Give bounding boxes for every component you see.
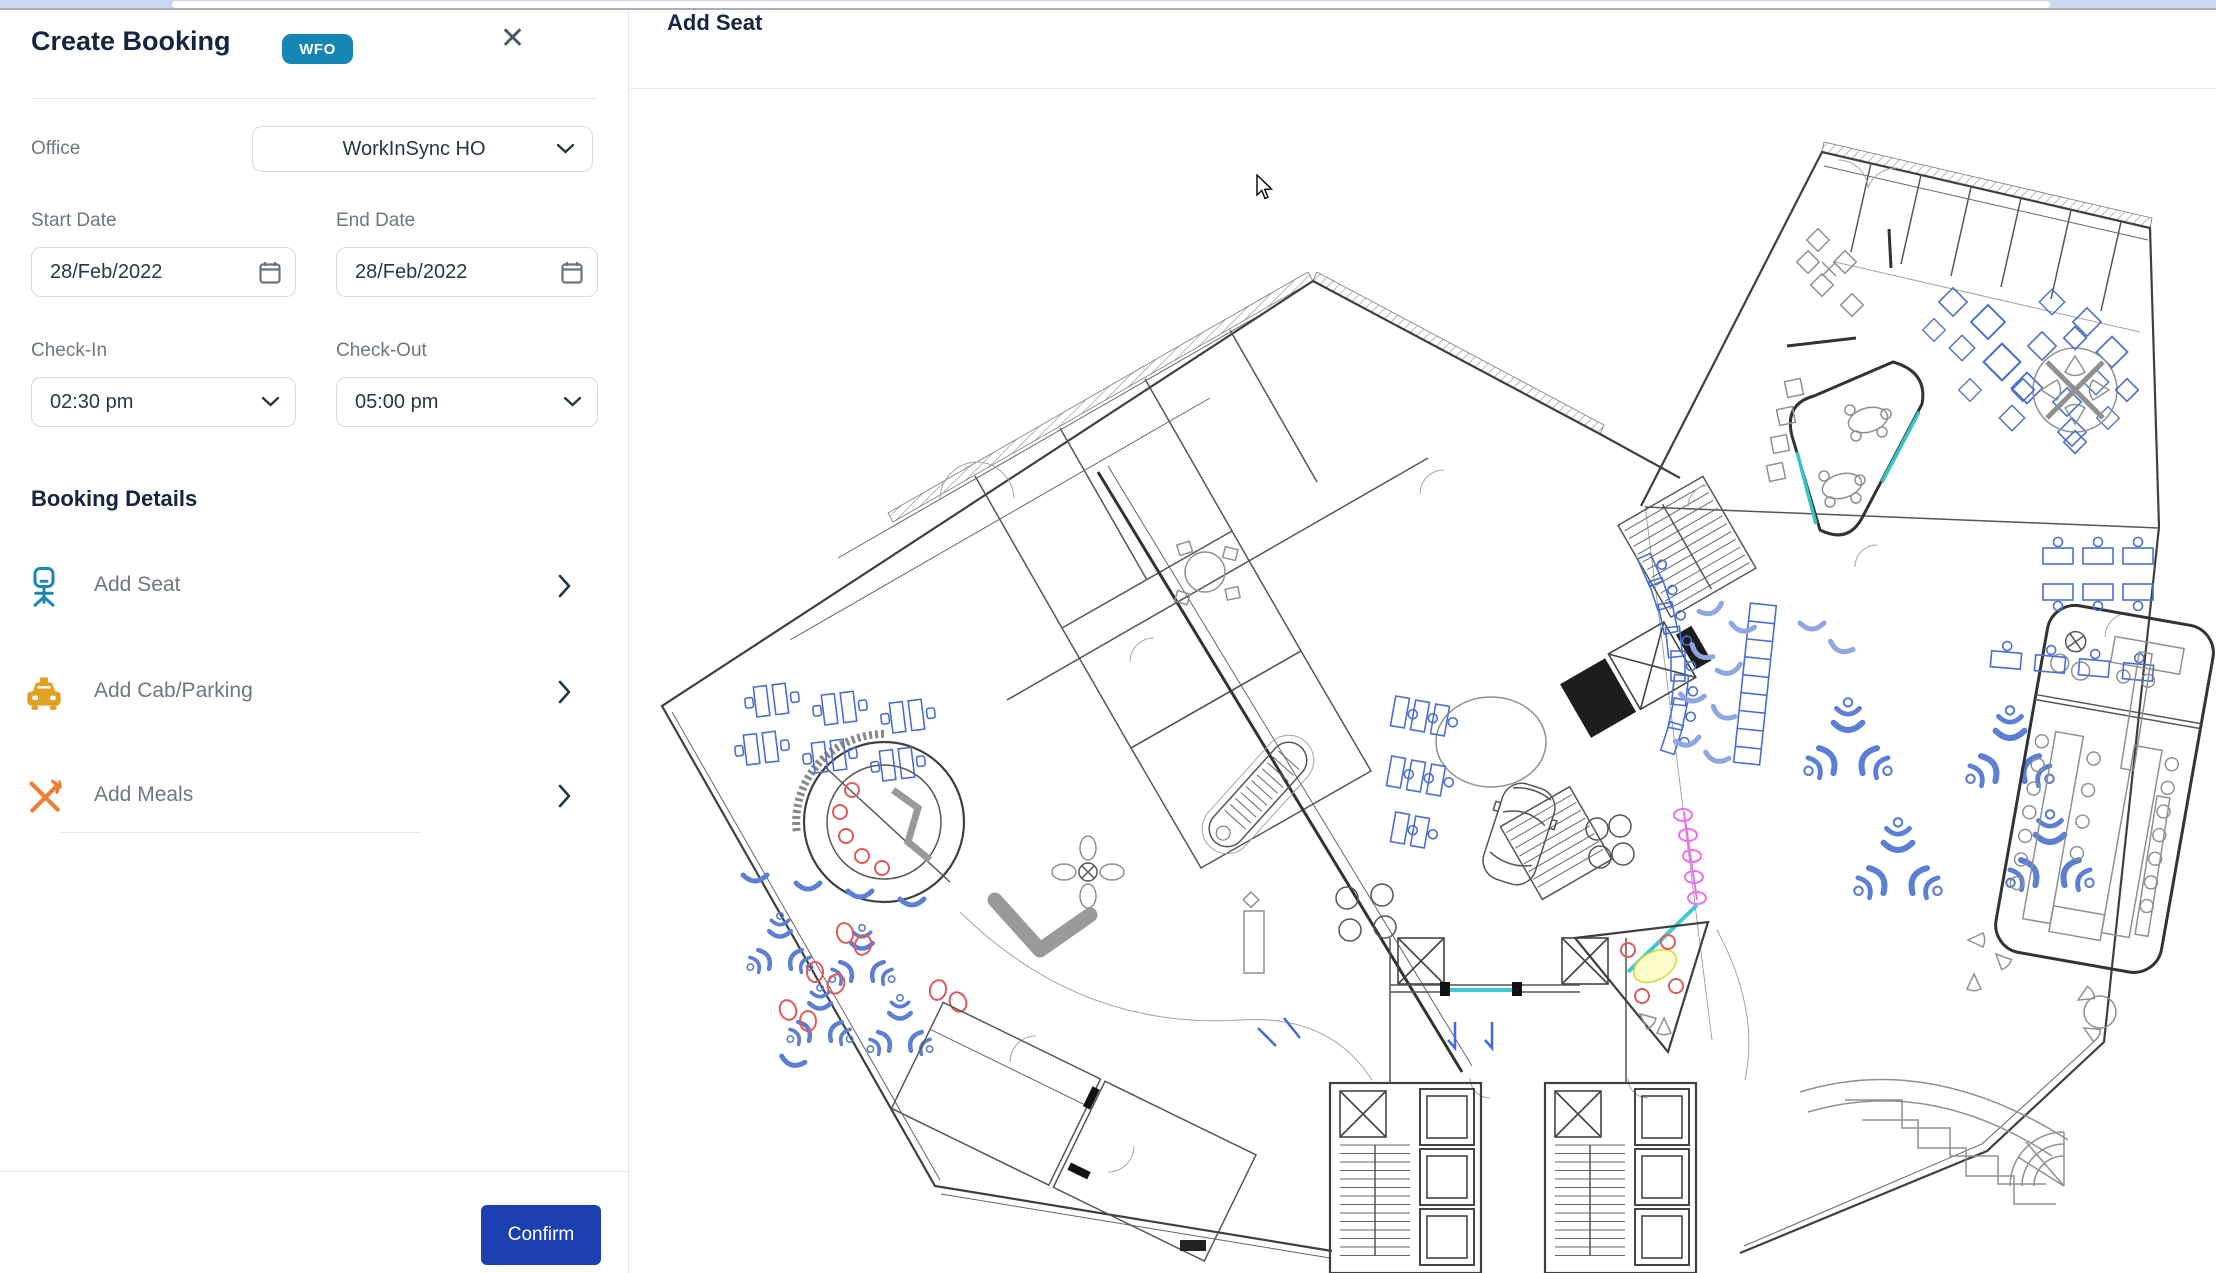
check-in-select[interactable]: 02:30 pm [31, 377, 296, 427]
office-chair-icon [26, 566, 62, 610]
chevron-down-icon [262, 397, 279, 407]
add-meals-row[interactable]: Add Meals [0, 770, 629, 824]
add-cab-parking-label: Add Cab/Parking [94, 679, 253, 703]
confirm-button[interactable]: Confirm [481, 1205, 601, 1265]
check-out-select[interactable]: 05:00 pm [336, 377, 598, 427]
office-label: Office [31, 138, 80, 160]
check-out-label: Check-Out [336, 340, 427, 362]
mouse-cursor [1256, 174, 1273, 200]
add-seat-row[interactable]: Add Seat [0, 560, 629, 614]
end-date-input[interactable]: 28/Feb/2022 [336, 247, 598, 297]
wfo-badge: WFO [282, 34, 353, 64]
horizontal-scrollbar[interactable] [0, 0, 2216, 10]
page-title: Create Booking [31, 26, 231, 57]
booking-details-heading: Booking Details [31, 486, 197, 512]
office-select[interactable]: WorkInSync HO [252, 126, 593, 172]
end-date-value: 28/Feb/2022 [355, 261, 561, 284]
calendar-icon [259, 261, 281, 284]
chevron-right-icon [558, 784, 571, 808]
start-date-value: 28/Feb/2022 [50, 261, 259, 284]
add-cab-parking-row[interactable]: Add Cab/Parking [0, 666, 629, 720]
workinsync-app: Create Booking WFO ✕ Office WorkInSync H… [0, 0, 2216, 1273]
chevron-right-icon [558, 680, 571, 704]
fork-knife-icon [26, 778, 64, 816]
chevron-right-icon [558, 574, 571, 598]
footer-divider [0, 1171, 628, 1172]
start-date-label: Start Date [31, 210, 117, 232]
check-in-value: 02:30 pm [50, 391, 262, 414]
add-meals-label: Add Meals [94, 783, 193, 807]
calendar-icon [561, 261, 583, 284]
office-value: WorkInSync HO [271, 138, 557, 161]
office-floor-plan[interactable] [629, 89, 2216, 1273]
check-out-value: 05:00 pm [355, 391, 564, 414]
chevron-down-icon [564, 397, 581, 407]
start-date-input[interactable]: 28/Feb/2022 [31, 247, 296, 297]
close-icon[interactable]: ✕ [500, 24, 525, 54]
header-divider [31, 98, 597, 99]
add-seat-label: Add Seat [94, 573, 180, 597]
end-date-label: End Date [336, 210, 415, 232]
chevron-down-icon [557, 144, 574, 154]
check-in-label: Check-In [31, 340, 107, 362]
map-panel-title: Add Seat [667, 10, 762, 36]
taxi-icon [24, 674, 64, 714]
details-divider [60, 832, 420, 833]
create-booking-panel: Create Booking WFO ✕ Office WorkInSync H… [0, 10, 629, 1273]
scrollbar-thumb[interactable] [172, 1, 2050, 8]
